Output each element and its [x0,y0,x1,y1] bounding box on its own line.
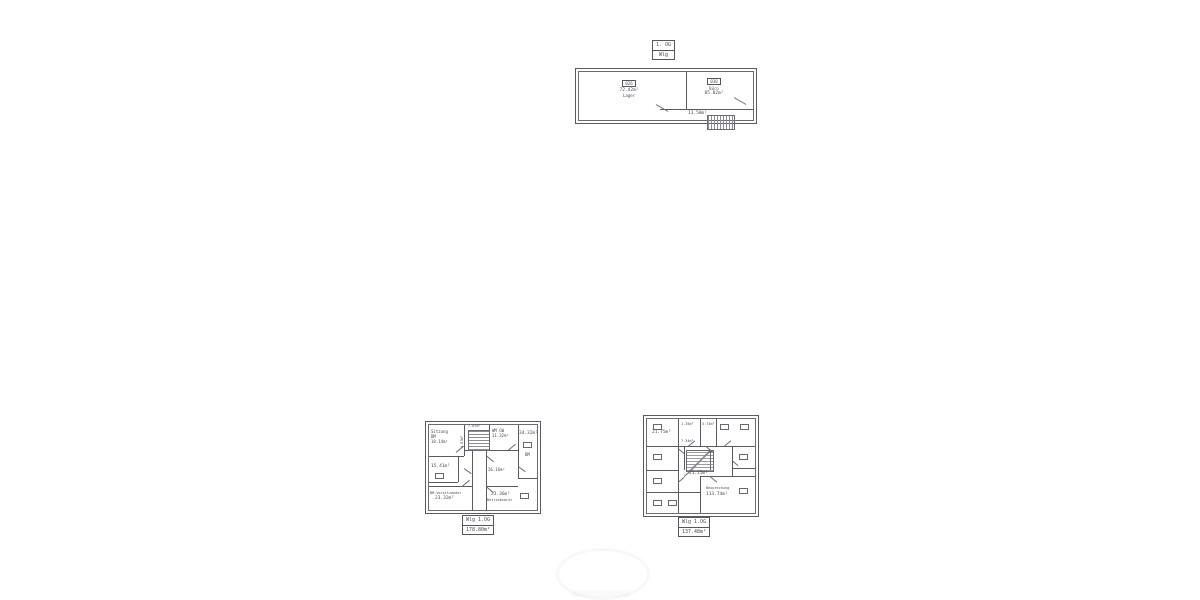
wall [647,446,678,447]
room-br-area: 23.36m² [491,492,510,498]
room-area: 18.14m² [431,439,448,444]
left-floor-plan: Sitzung BM 18.14m² 7.07m² 4.67m² WM GW 1… [425,421,541,514]
sheet-title-floor: 1. OG [653,41,674,50]
room-code-box [435,473,444,479]
small-room-area: 7.34m² [681,439,694,443]
wall [647,492,678,493]
room-code-box [523,442,532,448]
wall [429,486,472,487]
wall [684,446,685,470]
room-right-tag: BM [525,452,530,457]
right-plan-caption: Wlg 1.OG 137.48m² [678,517,710,537]
wall [518,478,537,479]
small-room-area: 1.35m² [681,422,694,426]
room-bl-name: BM-Vorsitzender [430,491,462,495]
room-code-box [668,500,677,506]
wall [686,72,687,109]
wall [732,468,755,469]
room-topleft-area: 21.75m² [652,430,671,436]
room-wm: WM GW 11.32m² [492,428,509,438]
room-code-box [739,454,748,460]
left-plan-caption: Wlg 1.OG 178.80m² [462,515,494,535]
wall [678,492,700,493]
top-floor-plan: 026 72.42m² Lager 030 Büro 85.02m² 13.58… [575,68,757,124]
room-name: Lager [601,93,657,98]
room-buero: 030 Büro 85.02m² [688,78,740,96]
stairs [707,115,735,130]
room-area: 85.02m² [688,91,740,97]
wall [647,470,678,471]
door-swing [656,104,669,112]
door-swing [734,97,747,105]
wall [716,419,717,446]
room-sitzung: Sitzung BM 18.14m² [431,429,448,444]
door-swing [464,468,472,474]
room-code: 026 [622,80,635,87]
corridor-area: 13.58m² [688,111,707,117]
room-code-box [520,493,529,499]
caption-title: Wlg 1.OG [679,518,709,527]
room-code-box [720,424,729,430]
wall [678,446,755,447]
wall [660,109,753,110]
room-area: 11.32m² [492,433,509,438]
wall [700,419,701,446]
wall [472,450,473,510]
wall [678,419,679,513]
room-center-area: 26.16m² [488,467,505,472]
wall [486,486,518,487]
room-code-box [653,454,662,460]
room-code-box [739,488,748,494]
sheet-title-type: Wlg [653,50,674,60]
caption-area: 137.48m² [679,527,709,537]
room-br-name: Betriebsarzt [487,498,512,502]
floor-plan-sheet: 1. OG Wlg 026 72.42m² Lager 030 Büro 85.… [0,0,1200,600]
small-room-area: 3.74m² [702,422,715,426]
stair-side-area: 4.67m² [460,435,464,448]
room-leftmid-area: 15.41m² [431,464,450,470]
room-bl-area: 23.32m² [435,496,454,502]
room-right-area: 34.32m² [519,431,538,437]
room-code-box [653,478,662,484]
stairs-direction-line [710,452,711,470]
room-code: 030 [707,78,720,85]
right-floor-plan: 21.75m² 1.35m² 3.74m² 7.34m² 21.25m² Bes… [643,415,759,517]
watermark-text-bar [572,590,630,597]
room-code-box [740,424,749,430]
wall [458,456,459,482]
wall [464,425,465,456]
room-br-name: Besprechung [706,486,729,490]
stair-area: 7.07m² [468,424,481,428]
wall [700,476,701,513]
caption-title: Wlg 1.OG [463,516,493,525]
stairs [468,430,490,451]
door-swing [710,476,718,483]
room-lager: 026 72.42m² Lager [601,80,657,98]
caption-area: 178.80m² [463,525,493,535]
room-code-box [653,500,662,506]
room-br-area: 113.74m² [706,492,728,498]
corridor-area: 21.25m² [689,471,708,477]
sheet-title-box: 1. OG Wlg [652,40,675,60]
wall [429,482,458,483]
